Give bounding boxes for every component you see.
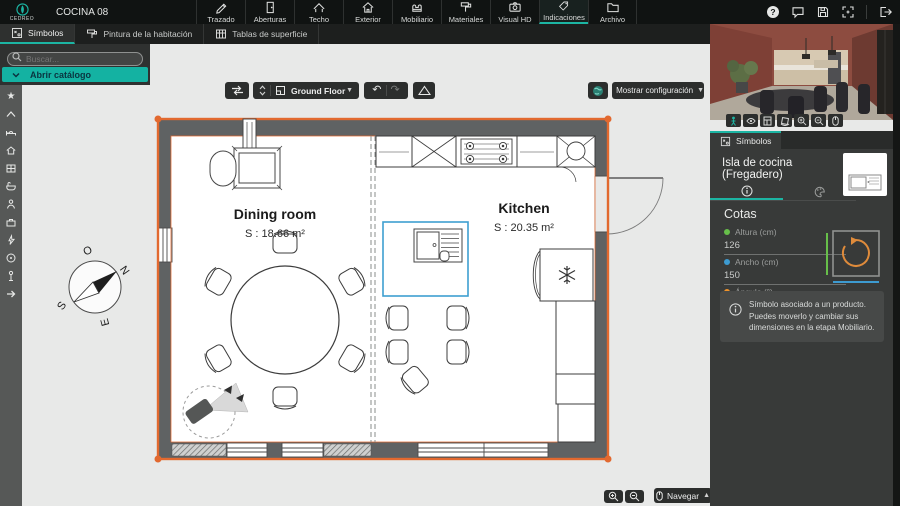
window-symbol[interactable] [158, 228, 172, 262]
top-bar: CEDREO COCINA 08 Trazado Aberturas Techo… [0, 0, 900, 24]
low-wall-hatch [324, 444, 371, 456]
rotate-arrow-icon [843, 240, 869, 266]
rotation-widget[interactable] [823, 227, 887, 287]
subtab-label: Símbolos [28, 28, 63, 38]
properties-panel: Símbolos Isla de cocina (Fregadero) Cota… [710, 131, 893, 506]
subtab-label: Pintura de la habitación [103, 29, 192, 39]
palette-icon [814, 186, 826, 198]
topbar-actions: ? [766, 0, 892, 24]
eye-button[interactable] [743, 114, 758, 127]
target-icon[interactable] [2, 251, 20, 265]
hob-symbol[interactable] [461, 139, 512, 164]
mouse-icon [656, 491, 663, 501]
divider [270, 85, 271, 96]
star-icon[interactable]: ★ [2, 89, 20, 103]
zoom-out-button[interactable] [625, 490, 644, 503]
table-icon [215, 28, 227, 40]
symbols-icon [720, 136, 731, 147]
door-symbol[interactable] [594, 176, 663, 234]
compass-south: S [55, 300, 69, 313]
house-icon [361, 0, 375, 14]
undo-icon[interactable]: ↶ [372, 85, 381, 96]
panel-tab-label: Símbolos [736, 136, 771, 146]
globe-button[interactable] [588, 82, 608, 99]
room-area: S : 20.35 m² [494, 222, 554, 234]
layout-button[interactable] [760, 114, 775, 127]
chevron-down-icon: ▼ [346, 87, 353, 94]
triangle-icon [418, 85, 431, 96]
redo-icon[interactable]: ↷ [391, 85, 400, 96]
preview-zoom-out-button[interactable] [811, 114, 826, 127]
pencil-icon [214, 0, 228, 14]
door-icon [263, 0, 277, 14]
cedreo-logo[interactable]: CEDREO [0, 0, 44, 24]
preview-toolbar [726, 114, 843, 127]
menu-item-exterior[interactable]: Exterior [343, 0, 392, 24]
symbol-title: Isla de cocina (Fregadero) [722, 157, 847, 181]
menu-label: Trazado [207, 15, 234, 24]
zoom-in-button[interactable] [604, 490, 623, 503]
zoom-out-icon [629, 491, 640, 502]
open-catalog-label: Abrir catálogo [30, 70, 91, 80]
menu-label: Visual HD [498, 15, 531, 24]
measure-button[interactable] [413, 82, 435, 99]
menu-label: Techo [309, 15, 329, 24]
paint-roller-icon [459, 0, 473, 14]
divider [386, 85, 387, 96]
paint-icon [86, 28, 98, 40]
panel-tab-simbolos[interactable]: Símbolos [710, 131, 781, 149]
toolbox-icon[interactable] [2, 215, 20, 229]
symbols-icon [11, 27, 23, 39]
menu-item-mobiliario[interactable]: Mobiliario [392, 0, 441, 24]
stepper-icon [259, 85, 266, 96]
fit-view-icon[interactable] [841, 5, 855, 19]
field-label: Altura (cm) [735, 227, 777, 237]
compass-north: N [117, 264, 131, 277]
catalog-panel: Abrir catálogo [0, 44, 150, 85]
main-menu: Trazado Aberturas Techo Exterior Mobilia… [196, 0, 637, 24]
info-box: Símbolo asociado a un producto. Puedes m… [720, 291, 884, 342]
navigate-label: Navegar [667, 491, 699, 501]
island-sink-selected[interactable] [383, 222, 468, 296]
search-input[interactable] [7, 52, 143, 66]
topbar-divider [866, 5, 867, 19]
menu-item-aberturas[interactable]: Aberturas [245, 0, 294, 24]
menu-item-visual-hd[interactable]: Visual HD [490, 0, 539, 24]
chevron-down-icon: ▼ [697, 87, 704, 94]
field-label: Ancho (cm) [735, 257, 778, 267]
chevron-down-icon [12, 72, 20, 78]
menu-label: Mobiliario [401, 15, 433, 24]
open-catalog-button[interactable]: Abrir catálogo [2, 67, 148, 82]
project-title: COCINA 08 [56, 0, 186, 24]
compass-west: O [81, 244, 94, 259]
svg-text:?: ? [770, 7, 775, 17]
show-config-dropdown[interactable]: Mostrar configuración ▼ [612, 82, 704, 99]
exit-icon[interactable] [878, 5, 892, 19]
roof-icon[interactable] [2, 107, 20, 121]
floor-selector[interactable]: Ground Floor ▼ [253, 82, 359, 99]
walk-mode-button[interactable] [726, 114, 741, 127]
menu-item-trazado[interactable]: Trazado [196, 0, 245, 24]
subtab-simbolos[interactable]: Símbolos [0, 24, 75, 44]
search-icon [12, 52, 22, 62]
bed-icon[interactable] [2, 125, 20, 139]
undo-redo-group: ↶ ↷ [364, 82, 408, 99]
stage-subtabs: Símbolos Pintura de la habitación Tablas… [0, 24, 710, 44]
floor-name: Ground Floor [291, 86, 345, 96]
fridge-symbol[interactable] [533, 249, 593, 301]
swap-arrows-icon [231, 85, 244, 96]
menu-item-archivo[interactable]: Archivo [588, 0, 637, 24]
menu-label: Aberturas [254, 15, 287, 24]
floor-plan-canvas[interactable]: Dining room S : 18.66 m² Kitchen S : 20.… [22, 44, 710, 506]
compass-east: E [99, 317, 112, 327]
room-area: S : 18.66 m² [245, 228, 305, 240]
kitchen-cabinets-right[interactable] [556, 301, 595, 442]
mouse-mode-button[interactable] [828, 114, 843, 127]
room-name: Dining room [234, 206, 316, 222]
info-icon [729, 303, 742, 316]
info-text: Símbolo asociado a un producto. Puedes m… [749, 299, 876, 334]
tag-icon [557, 0, 571, 12]
arrow-right-icon[interactable] [2, 287, 20, 301]
folder-icon [606, 0, 620, 14]
person-icon[interactable] [2, 197, 20, 211]
bathtub-icon[interactable] [2, 179, 20, 193]
chevron-up-icon: ▲ [703, 492, 710, 499]
navigate-dropdown[interactable]: Navegar ▲ [654, 488, 712, 503]
panel-tabstrip: Símbolos [710, 131, 893, 149]
menu-item-techo[interactable]: Techo [294, 0, 343, 24]
cedreo-logo-icon [16, 3, 29, 16]
menu-label: Archivo [600, 15, 625, 24]
floor-icon [275, 85, 286, 96]
blue-dot-icon [724, 259, 730, 265]
save-icon[interactable] [816, 5, 830, 19]
room-name: Kitchen [498, 200, 549, 216]
globe-icon [592, 85, 604, 97]
symbol-box [833, 231, 879, 276]
right-scroll-strip[interactable] [893, 24, 900, 506]
tool-rail: ★ [0, 85, 22, 506]
tab-info[interactable] [710, 183, 783, 200]
section-title: Cotas [724, 207, 757, 221]
3d-preview-viewport[interactable] [710, 24, 893, 120]
orbit-button[interactable] [777, 114, 792, 127]
cabinet-icon[interactable] [2, 161, 20, 175]
menu-item-indicaciones[interactable]: Indicaciones [539, 0, 588, 24]
menu-label: Indicaciones [543, 13, 585, 22]
subtab-label: Tablas de superficie [232, 29, 307, 39]
camera-icon [508, 0, 522, 14]
lamp-icon[interactable] [2, 269, 20, 283]
roof-icon [312, 0, 326, 14]
3d-preview-render [710, 24, 893, 120]
menu-label: Exterior [355, 15, 381, 24]
subtab-pintura[interactable]: Pintura de la habitación [75, 24, 204, 44]
help-icon[interactable]: ? [766, 5, 780, 19]
compass[interactable]: O N E S [55, 244, 131, 327]
app-window: CEDREO COCINA 08 Trazado Aberturas Techo… [0, 0, 900, 506]
zoom-in-icon [608, 491, 619, 502]
tab-appearance[interactable] [783, 183, 856, 200]
menu-item-materiales[interactable]: Materiales [441, 0, 490, 24]
panel-icon-tabs [710, 183, 856, 201]
green-dot-icon [724, 229, 730, 235]
menu-label: Materiales [449, 15, 484, 24]
comments-icon[interactable] [791, 5, 805, 19]
info-icon [741, 185, 753, 197]
subtab-tablas[interactable]: Tablas de superficie [204, 24, 319, 44]
lightning-icon[interactable] [2, 233, 20, 247]
view-switch-button[interactable] [225, 82, 249, 99]
house-icon[interactable] [2, 143, 20, 157]
show-config-label: Mostrar configuración [616, 86, 693, 95]
furniture-icon [410, 0, 424, 14]
low-wall-hatch [172, 444, 226, 456]
brand-name: CEDREO [10, 16, 34, 22]
preview-zoom-in-button[interactable] [794, 114, 809, 127]
